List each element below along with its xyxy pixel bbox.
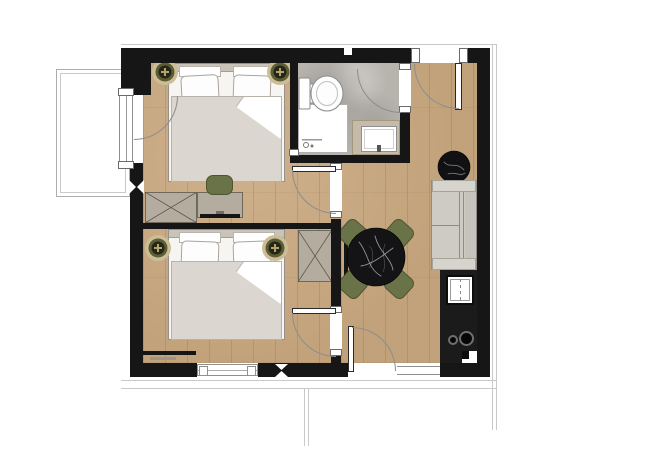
exterior-line-right-b	[496, 44, 497, 430]
wall-notch	[344, 48, 352, 55]
window-end-cap	[199, 366, 208, 376]
wall-bedroom-divider	[143, 223, 341, 229]
tv-stand	[216, 211, 224, 214]
floor-plan	[0, 0, 650, 450]
sofa-back-cushion	[465, 192, 476, 258]
wall-hall-b	[331, 356, 341, 363]
sofa	[431, 180, 477, 270]
window-balcony	[119, 95, 133, 163]
tv-shelf	[150, 357, 176, 360]
wall-top-left	[121, 48, 415, 63]
sofa-armrest	[432, 258, 476, 270]
window-end-cap	[247, 366, 256, 376]
balcony-railing	[60, 73, 126, 193]
duvet-fold	[236, 96, 282, 139]
wall-hall-a	[331, 219, 341, 307]
tv-icon	[142, 351, 196, 355]
cooktop-burner-icon	[448, 335, 458, 345]
exterior-line-right-a	[492, 44, 493, 430]
kitchen-sink	[446, 275, 474, 305]
counter-end-mark	[462, 351, 469, 359]
wall-bottom-b	[258, 363, 348, 377]
entrance-door-post	[411, 48, 420, 63]
sofa-cushion-line	[463, 192, 464, 258]
wall-cap	[289, 149, 299, 156]
wardrobe-x-icon	[298, 230, 332, 282]
exterior-line-bottom-b	[121, 388, 497, 389]
wall-bathroom-west	[290, 63, 298, 157]
shower-fixture-icon	[300, 137, 326, 151]
duvet	[171, 96, 282, 182]
entrance-door-post	[459, 48, 468, 63]
kitchen-sink-centerline	[460, 279, 461, 301]
wall-left	[130, 163, 143, 377]
exterior-line-bottom-a	[121, 380, 497, 381]
window-glass-line	[126, 96, 127, 162]
exterior-line-stub-b	[308, 388, 309, 446]
exterior-line-top	[121, 44, 497, 45]
wall-bathroom-east	[400, 112, 410, 155]
cooktop-burner-icon	[459, 331, 474, 346]
wall-bottom-a	[130, 363, 197, 377]
nightstand-lamp-icon	[260, 233, 290, 263]
sofa-cushion-line	[459, 192, 460, 258]
wall-bottom-c	[440, 363, 490, 377]
wall-joint-marker	[275, 364, 288, 377]
window-sill-cap	[118, 88, 134, 96]
dining-set	[329, 210, 423, 306]
wall-right	[477, 48, 490, 377]
duvet-fold	[236, 261, 282, 304]
sofa-armrest	[432, 180, 476, 192]
exterior-line-stub-a	[304, 388, 305, 446]
toilet-icon	[297, 71, 347, 117]
round-dining-table-icon	[347, 228, 405, 286]
sofa-seat-divider	[432, 225, 459, 226]
tv-icon	[200, 214, 240, 218]
faucet-icon	[377, 145, 381, 152]
window-sill-cap	[118, 161, 134, 169]
window-bedroom-2	[197, 364, 258, 376]
duvet	[171, 261, 282, 340]
desk-chair-icon	[206, 175, 233, 195]
wall-joint-marker	[129, 180, 144, 194]
wardrobe-x-icon	[145, 192, 197, 223]
window-fixed-glazing	[397, 366, 440, 375]
wall-bathroom-south	[290, 155, 410, 163]
nightstand-lamp-icon	[143, 233, 173, 263]
